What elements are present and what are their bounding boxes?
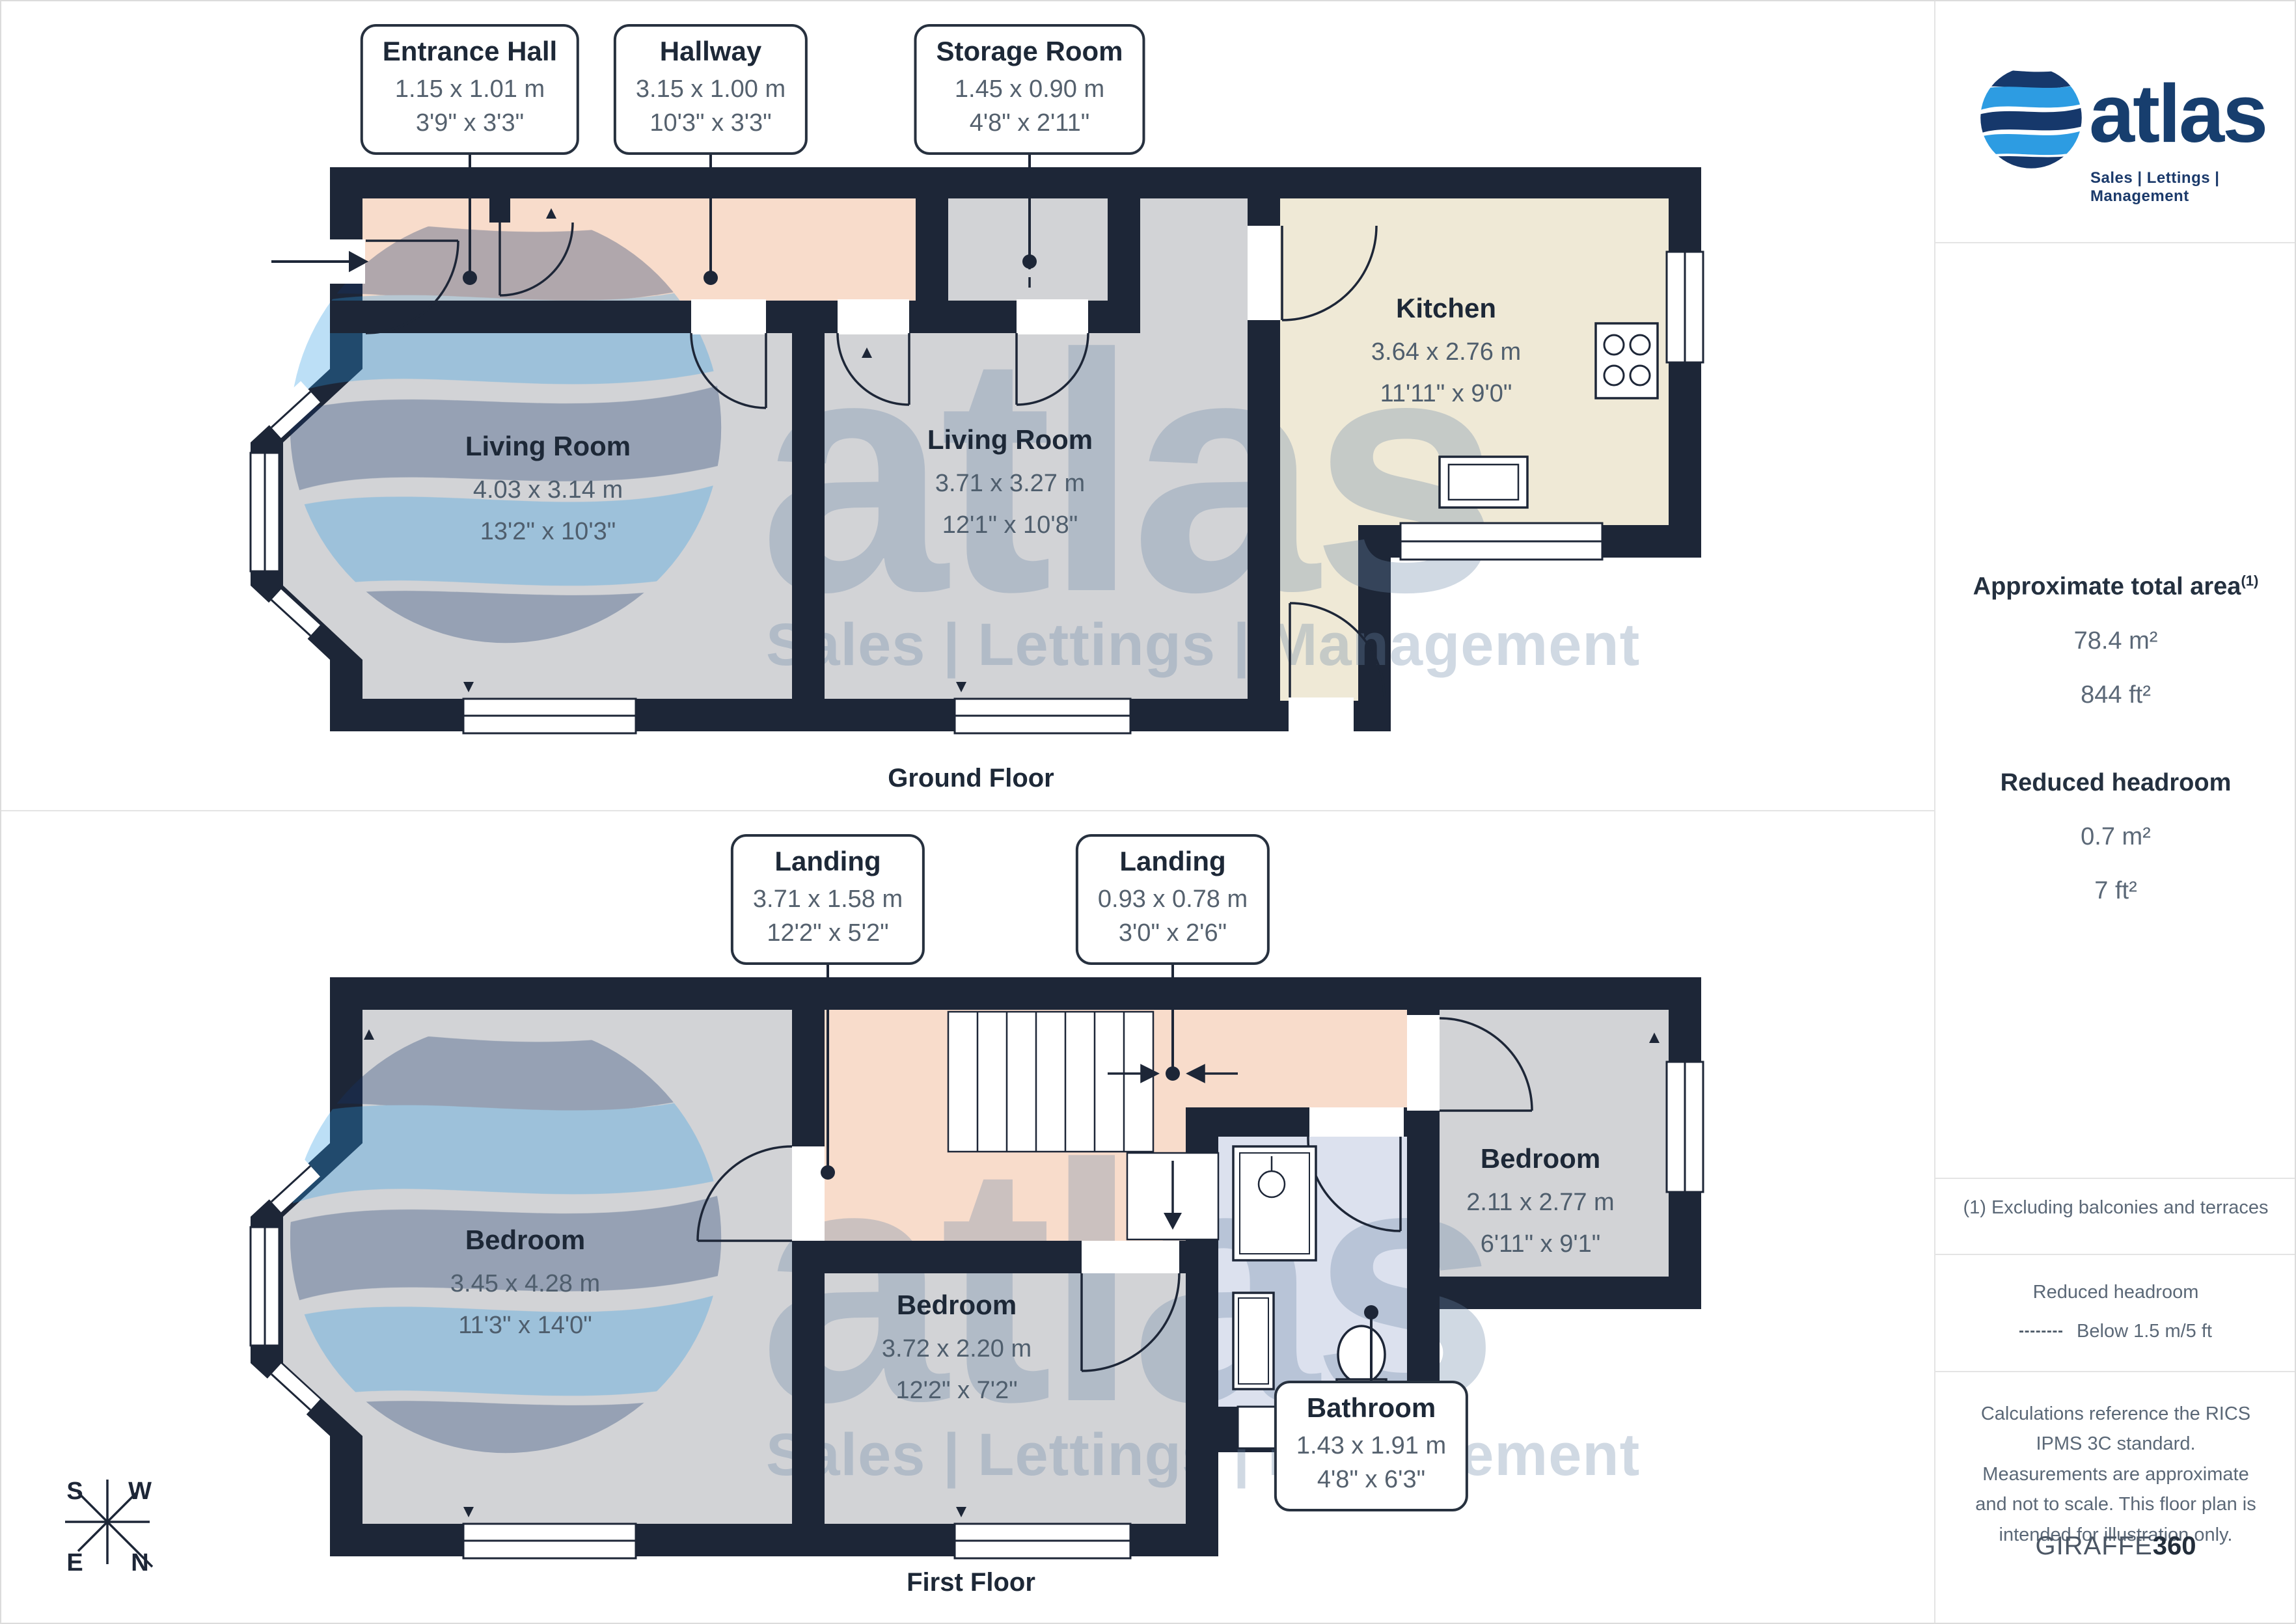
callout-title: Landing <box>1098 846 1248 877</box>
basin-icon <box>1233 1293 1274 1389</box>
callout-dim-ft: 10'3" x 3'3" <box>636 106 786 140</box>
svg-text:N: N <box>131 1549 148 1577</box>
callout-title: Hallway <box>636 36 786 67</box>
credit-name: GIRAFFE <box>2035 1532 2152 1560</box>
callout-title: Storage Room <box>936 36 1123 67</box>
area-title: Approximate total area(1) <box>1935 573 2296 601</box>
first-floor-plan: atlas Sales | Lettings | Management <box>1 811 1934 1624</box>
ground-floor-caption: Ground Floor <box>888 764 1054 793</box>
callout-dim-ft: 3'9" x 3'3" <box>383 106 557 140</box>
brand-name: atlas <box>2089 66 2266 161</box>
stove-icon <box>1596 323 1658 398</box>
callout-dim-m: 0.93 x 0.78 m <box>1098 882 1248 916</box>
footnote: (1) Excluding balconies and terraces <box>1947 1197 2284 1219</box>
svg-text:Sales | Lettings | Management: Sales | Lettings | Management <box>766 612 1640 679</box>
legend-title: Reduced headroom <box>1947 1282 2284 1303</box>
reduced-headroom-m2: 0.7 m² <box>1935 823 2296 851</box>
svg-text:E: E <box>66 1549 83 1577</box>
svg-text:W: W <box>128 1478 152 1505</box>
callout-dim-ft: 12'2" x 5'2" <box>753 916 903 950</box>
sink-icon <box>1440 457 1527 507</box>
disclaimer-text: Calculations reference the RICS IPMS 3C … <box>1972 1399 2260 1550</box>
callout-dim-ft: 3'0" x 2'6" <box>1098 916 1248 950</box>
svg-text:atlas: atlas <box>759 284 1492 662</box>
brand-tagline: Sales | Lettings | Management <box>2090 169 2295 206</box>
floorplan-sheet: atlas Sales | Lettings | Management <box>0 0 2296 1624</box>
svg-text:S: S <box>66 1478 83 1505</box>
area-ft2: 844 ft² <box>1935 681 2296 709</box>
panel-section-divider <box>1935 1371 2296 1372</box>
shower-icon <box>1233 1146 1316 1260</box>
callout-dim-m: 1.45 x 0.90 m <box>936 72 1123 106</box>
callout-dim-m: 1.15 x 1.01 m <box>383 72 557 106</box>
callout-landing-2: Landing 0.93 x 0.78 m 3'0" x 2'6" <box>1076 834 1270 965</box>
area-footnote-ref: (1) <box>2241 573 2258 589</box>
callout-bathroom: Bathroom 1.43 x 1.91 m 4'8" x 6'3" <box>1274 1381 1468 1511</box>
callout-title: Landing <box>753 846 903 877</box>
callout-entrance-hall: Entrance Hall 1.15 x 1.01 m 3'9" x 3'3" <box>361 24 579 155</box>
credit-number: 360 <box>2153 1532 2196 1560</box>
panel-section-divider <box>1935 242 2296 243</box>
callout-hallway: Hallway 3.15 x 1.00 m 10'3" x 3'3" <box>614 24 808 155</box>
panel-section-divider <box>1935 1254 2296 1255</box>
callout-dim-ft: 4'8" x 6'3" <box>1296 1463 1446 1496</box>
brand-globe-icon <box>1978 65 2084 170</box>
callout-title: Entrance Hall <box>383 36 557 67</box>
dashed-line-icon <box>2019 1331 2062 1333</box>
callout-dim-m: 1.43 x 1.91 m <box>1296 1429 1446 1463</box>
legend-label: Below 1.5 m/5 ft <box>2077 1321 2212 1342</box>
reduced-headroom-ft2: 7 ft² <box>1935 877 2296 905</box>
callout-dim-ft: 4'8" x 2'11" <box>936 106 1123 140</box>
callout-dim-m: 3.15 x 1.00 m <box>636 72 786 106</box>
area-summary: Approximate total area(1) 78.4 m² 844 ft… <box>1935 573 2296 905</box>
callout-landing-1: Landing 3.71 x 1.58 m 12'2" x 5'2" <box>731 834 925 965</box>
area-m2: 78.4 m² <box>1935 627 2296 655</box>
panel-section-divider <box>1935 1178 2296 1179</box>
entry-arrow-icon <box>271 253 366 270</box>
giraffe360-credit: GIRAFFE360 <box>1947 1532 2284 1561</box>
reduced-headroom-title: Reduced headroom <box>1935 769 2296 797</box>
compass-letters: S W E N <box>66 1478 152 1577</box>
callout-storage-room: Storage Room 1.45 x 0.90 m 4'8" x 2'11" <box>914 24 1145 155</box>
first-floor-caption: First Floor <box>907 1568 1035 1597</box>
floor-divider <box>1 810 1934 811</box>
ff-landing2-floor <box>1186 1010 1407 1107</box>
callout-title: Bathroom <box>1296 1392 1446 1424</box>
callout-dim-m: 3.71 x 1.58 m <box>753 882 903 916</box>
legend-row: Below 1.5 m/5 ft <box>1947 1321 2284 1342</box>
